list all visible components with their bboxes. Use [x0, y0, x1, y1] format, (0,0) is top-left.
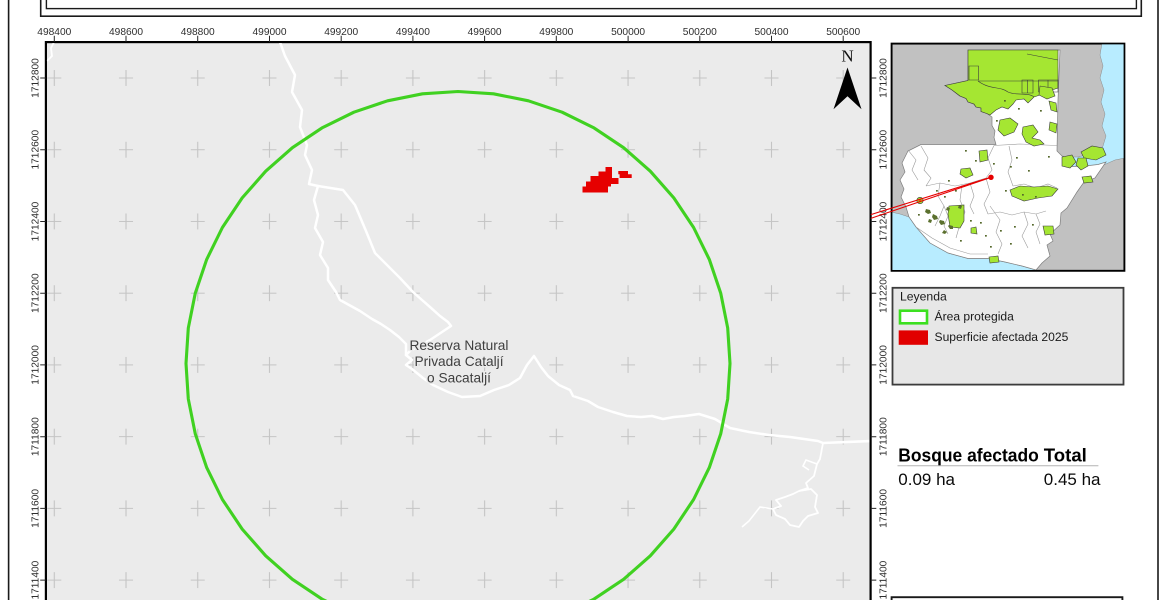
svg-text:499000: 499000 — [253, 27, 287, 38]
svg-text:1711800: 1711800 — [879, 417, 890, 456]
svg-text:500400: 500400 — [755, 27, 789, 38]
svg-text:1711400: 1711400 — [31, 560, 42, 599]
svg-text:499600: 499600 — [468, 27, 502, 38]
svg-text:1711600: 1711600 — [879, 489, 890, 528]
svg-text:499800: 499800 — [539, 27, 573, 38]
svg-text:1712200: 1712200 — [879, 273, 890, 313]
svg-text:1711400: 1711400 — [879, 560, 890, 599]
svg-text:0.09 ha: 0.09 ha — [898, 470, 955, 489]
svg-text:1711600: 1711600 — [31, 489, 42, 528]
svg-text:1712400: 1712400 — [31, 201, 42, 241]
svg-text:Privada Cataljí: Privada Cataljí — [414, 354, 503, 369]
svg-text:500000: 500000 — [611, 27, 645, 38]
svg-text:499400: 499400 — [396, 27, 430, 38]
svg-text:0.45 ha: 0.45 ha — [1044, 470, 1101, 489]
svg-text:Reserva Natural: Reserva Natural — [410, 338, 509, 353]
svg-text:1712400: 1712400 — [879, 201, 890, 241]
svg-text:1712200: 1712200 — [31, 273, 42, 313]
svg-text:1712600: 1712600 — [31, 130, 42, 170]
svg-text:1712000: 1712000 — [31, 345, 42, 385]
svg-text:Superficie afectada 2025: Superficie afectada 2025 — [935, 330, 1069, 344]
svg-text:Total: Total — [1044, 445, 1087, 466]
svg-text:1712800: 1712800 — [31, 58, 42, 98]
svg-text:498400: 498400 — [37, 27, 71, 38]
svg-text:Leyenda: Leyenda — [900, 289, 947, 303]
svg-text:Bosque afectado: Bosque afectado — [898, 445, 1039, 466]
svg-text:1711800: 1711800 — [31, 417, 42, 456]
svg-text:499200: 499200 — [324, 27, 358, 38]
svg-text:N: N — [841, 47, 853, 66]
svg-text:1712600: 1712600 — [879, 130, 890, 170]
svg-text:500200: 500200 — [683, 27, 717, 38]
svg-text:Área protegida: Área protegida — [935, 308, 1015, 323]
svg-text:1712800: 1712800 — [879, 58, 890, 98]
svg-text:500600: 500600 — [826, 27, 860, 38]
svg-text:498600: 498600 — [109, 27, 143, 38]
svg-text:o Sacataljí: o Sacataljí — [427, 370, 491, 385]
svg-text:1712000: 1712000 — [879, 345, 890, 385]
svg-text:498800: 498800 — [181, 27, 215, 38]
